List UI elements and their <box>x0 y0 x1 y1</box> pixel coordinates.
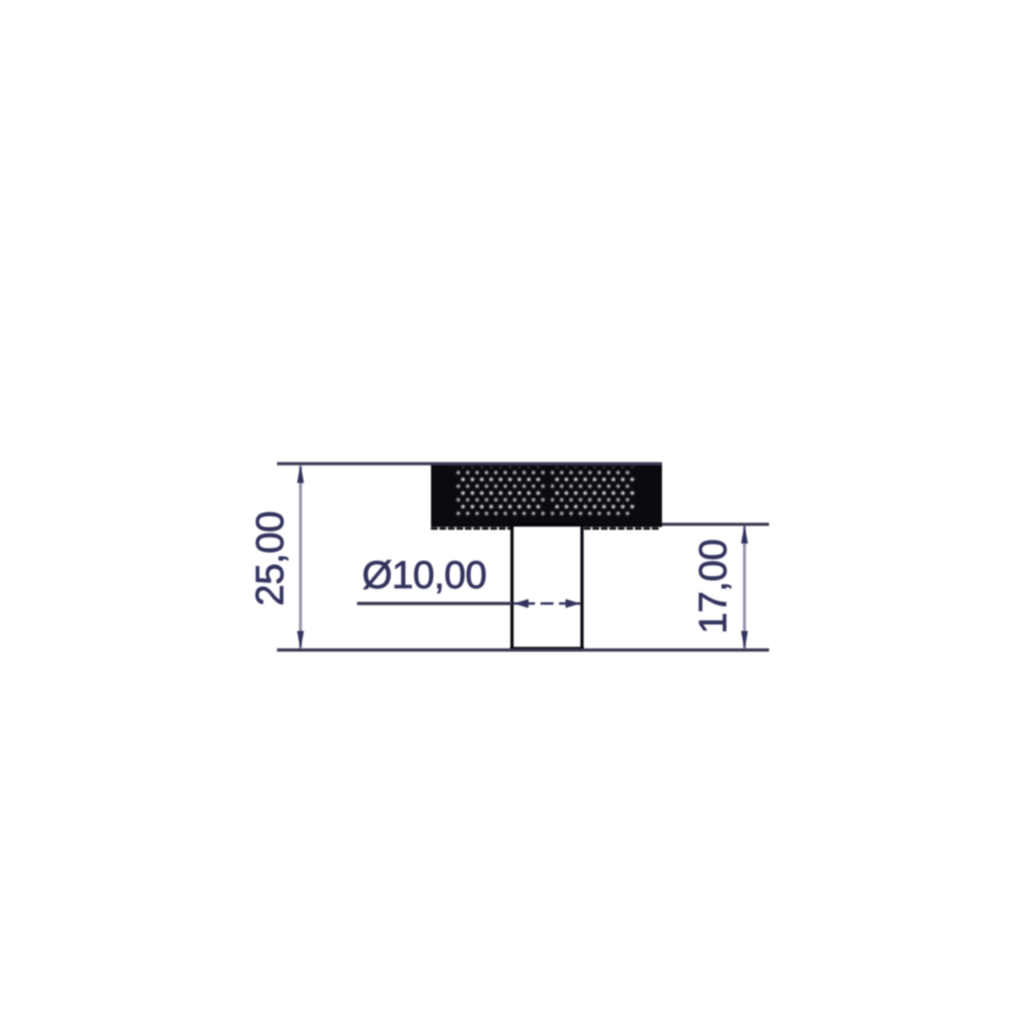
svg-text:Ø10,00: Ø10,00 <box>362 554 486 597</box>
svg-text:17,00: 17,00 <box>692 539 735 634</box>
svg-text:25,00: 25,00 <box>249 511 292 606</box>
